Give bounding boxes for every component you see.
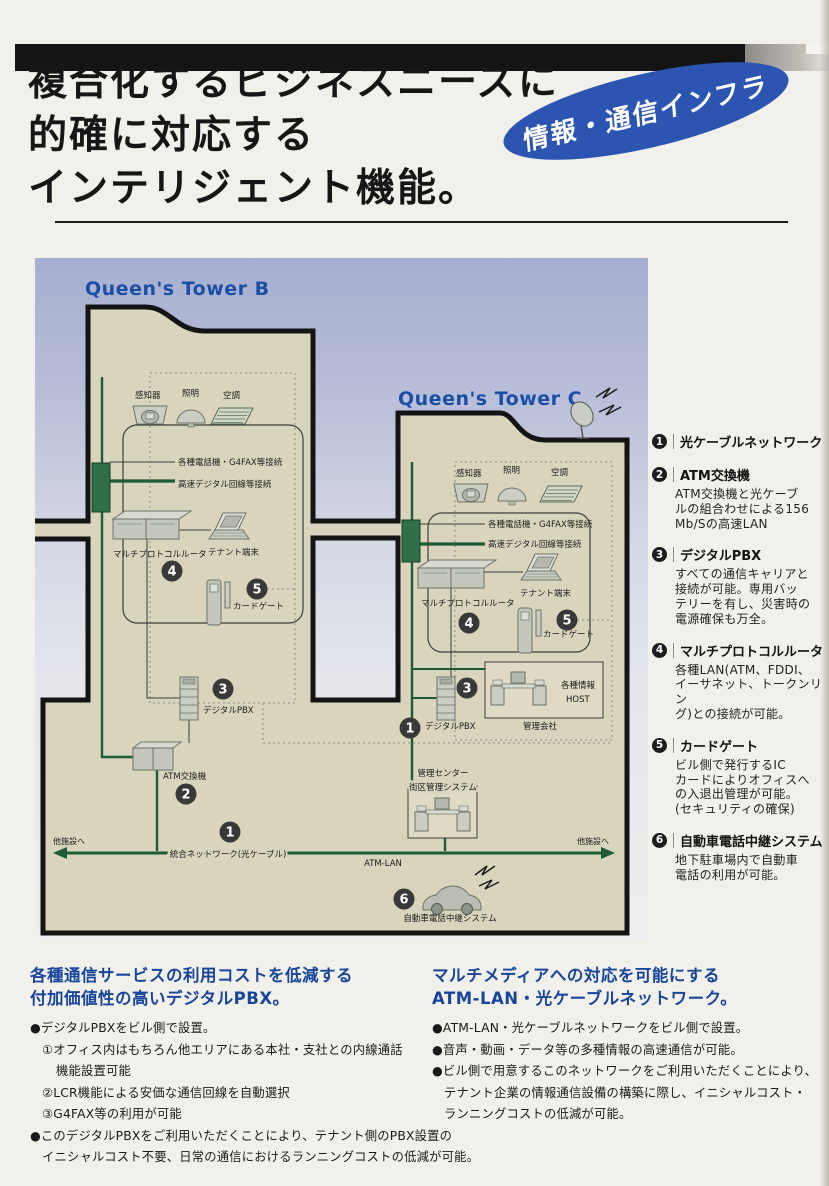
legend-num-icon: 1 bbox=[652, 434, 667, 449]
router-icon bbox=[113, 511, 191, 539]
legend-num-icon: 5 bbox=[652, 738, 667, 753]
lighting-label: 照明 bbox=[182, 389, 199, 399]
section-line: ●ATM-LAN・光ケーブルネットワークをビル側で設置。 bbox=[432, 1018, 827, 1040]
section-atm-lan: マルチメディアへの対応を可能にする ATM-LAN・光ケーブルネットワーク。 ●… bbox=[432, 964, 827, 1126]
legend-item-router: 4 マルチプロトコルルータ 各種LAN(ATM、FDDI、 イーサネット、トーク… bbox=[652, 641, 826, 722]
router-label: マルチプロトコルルータ bbox=[113, 550, 207, 560]
legend-num-icon: 3 bbox=[652, 547, 667, 562]
tenant-terminal-label: テナント端末 bbox=[520, 588, 572, 599]
car-wheel bbox=[432, 904, 443, 915]
badge-4: 4 bbox=[464, 617, 473, 632]
card-gate-label: カードゲート bbox=[543, 629, 594, 640]
digital-pbx-label: デジタルPBX bbox=[425, 721, 476, 732]
to-other-right-label: 他施設へ bbox=[577, 836, 609, 846]
badge-6: 6 bbox=[399, 893, 408, 908]
legend-item-atm-switch: 2 ATM交換機 ATM交換機と光ケーブ ルの組合わせによる156 Mb/Sの高… bbox=[652, 465, 826, 531]
section-line: ●音声・動画・データ等の多種情報の高速通信が可能。 bbox=[432, 1040, 827, 1062]
router-label: マルチプロトコルルータ bbox=[421, 599, 515, 609]
legend-num-icon: 2 bbox=[652, 467, 667, 482]
district-system-label: 街区管理システム bbox=[409, 782, 477, 793]
section-line: ●デジタルPBXをビル側で設置。 bbox=[30, 1018, 425, 1040]
divider bbox=[673, 434, 674, 449]
aircon-icon bbox=[211, 408, 253, 424]
badge-4: 4 bbox=[167, 565, 176, 580]
aircon-label: 空調 bbox=[223, 390, 240, 401]
digital-line-label: 高速デジタル回線等接続 bbox=[178, 479, 272, 490]
mgmt-center-label: 管理センター bbox=[417, 768, 468, 779]
atm-lan-label: ATM-LAN bbox=[364, 859, 402, 869]
sensor-icon bbox=[133, 406, 167, 424]
digital-pbx-icon bbox=[437, 677, 455, 720]
badge-2: 2 bbox=[181, 788, 190, 803]
riser-junction-b bbox=[92, 463, 110, 512]
section-line: ランニングコストの低減が可能。 bbox=[432, 1104, 827, 1126]
divider bbox=[673, 547, 674, 562]
section-line: ●ビル側で用意するこのネットワークをご利用いただくことにより、 bbox=[432, 1061, 827, 1083]
section-line: ③G4FAX等の利用が可能 bbox=[30, 1104, 425, 1126]
section-line: ②LCR機能による安価な通信回線を自動選択 bbox=[30, 1083, 425, 1105]
badge-3: 3 bbox=[462, 682, 471, 697]
to-other-left-label: 他施設へ bbox=[53, 836, 85, 846]
section-line: イニシャルコスト不要、日常の通信におけるランニングコストの低減が可能。 bbox=[30, 1147, 425, 1169]
backbone-label: 統合ネットワーク(光ケーブル) bbox=[170, 849, 287, 860]
section-digital-pbx: 各種通信サービスの利用コストを低減する 付加価値性の高いデジタルPBX。 ●デジ… bbox=[30, 964, 425, 1169]
sensor-label: 感知器 bbox=[135, 390, 161, 401]
divider bbox=[673, 643, 674, 658]
info-host-label: 各種情報 bbox=[561, 680, 596, 691]
headline-divider bbox=[55, 221, 788, 223]
digital-pbx-icon bbox=[180, 677, 198, 720]
phones-label: 各種電話機・G4FAX等接続 bbox=[178, 457, 283, 468]
badge-3: 3 bbox=[218, 683, 227, 698]
sensor-label: 感知器 bbox=[456, 468, 482, 479]
car-wheel bbox=[462, 904, 473, 915]
section-heading: 各種通信サービスの利用コストを低減する 付加価値性の高いデジタルPBX。 bbox=[30, 964, 425, 1010]
divider bbox=[673, 833, 674, 848]
legend-item-car-phone: 6 自動車電話中継システム 地下駐車場内で自動車 電話の利用が可能。 bbox=[652, 831, 826, 883]
badge-1: 1 bbox=[225, 826, 234, 841]
router-icon bbox=[418, 560, 496, 588]
badge-1: 1 bbox=[405, 722, 414, 737]
legend-item-fiber: 1 光ケーブルネットワーク bbox=[652, 432, 826, 451]
aircon-label: 空調 bbox=[551, 467, 568, 478]
aircon-icon bbox=[540, 486, 582, 502]
sensor-icon bbox=[454, 484, 488, 502]
digital-line-label: 高速デジタル回線等接続 bbox=[488, 539, 582, 550]
badge-5: 5 bbox=[252, 583, 261, 598]
digital-pbx-label: デジタルPBX bbox=[203, 705, 254, 716]
tenant-terminal-label: テナント端末 bbox=[208, 547, 260, 558]
mgmt-company-label: 管理会社 bbox=[523, 721, 558, 732]
badge-5: 5 bbox=[562, 614, 571, 629]
divider bbox=[673, 738, 674, 753]
card-gate-label: カードゲート bbox=[233, 601, 284, 612]
divider bbox=[673, 467, 674, 482]
legend-item-card-gate: 5 カードゲート ビル側で発行するIC カードによりオフィスへ の入退出管理が可… bbox=[652, 736, 826, 817]
tower-b-label: Queen's Tower B bbox=[85, 278, 270, 300]
legend-num-icon: 6 bbox=[652, 833, 667, 848]
atm-switch-label: ATM交換機 bbox=[163, 771, 207, 782]
section-line: テナント企業の情報通信設備の構築に際し、イニシャルコスト・ bbox=[432, 1083, 827, 1105]
section-line: ①オフィス内はもちろん他エリアにある本社・支社との内線通話 bbox=[30, 1040, 425, 1062]
host-label: HOST bbox=[566, 695, 590, 705]
phones-label: 各種電話機・G4FAX等接続 bbox=[488, 519, 593, 530]
section-line: ●このデジタルPBXをご利用いただくことにより、テナント側のPBX設置の bbox=[30, 1126, 425, 1148]
legend-item-pbx: 3 デジタルPBX すべての通信キャリアと 接続が可能。専用バッ テリーを有し、… bbox=[652, 545, 826, 626]
lighting-label: 照明 bbox=[503, 466, 520, 476]
car-phone-label: 自動車電話中継システム bbox=[403, 913, 496, 924]
section-line: 機能設置可能 bbox=[30, 1061, 425, 1083]
legend-sidebar: 1 光ケーブルネットワーク 2 ATM交換機 ATM交換機と光ケーブ ルの組合わ… bbox=[652, 432, 826, 897]
riser-junction-c bbox=[402, 520, 420, 562]
page-edge-shadow bbox=[820, 0, 829, 1186]
tower-c-label: Queen's Tower C bbox=[398, 388, 582, 410]
section-heading: マルチメディアへの対応を可能にする ATM-LAN・光ケーブルネットワーク。 bbox=[432, 964, 827, 1010]
legend-num-icon: 4 bbox=[652, 643, 667, 658]
network-diagram: Queen's Tower B Queen's Tower C 感知器 照明 bbox=[35, 258, 648, 940]
